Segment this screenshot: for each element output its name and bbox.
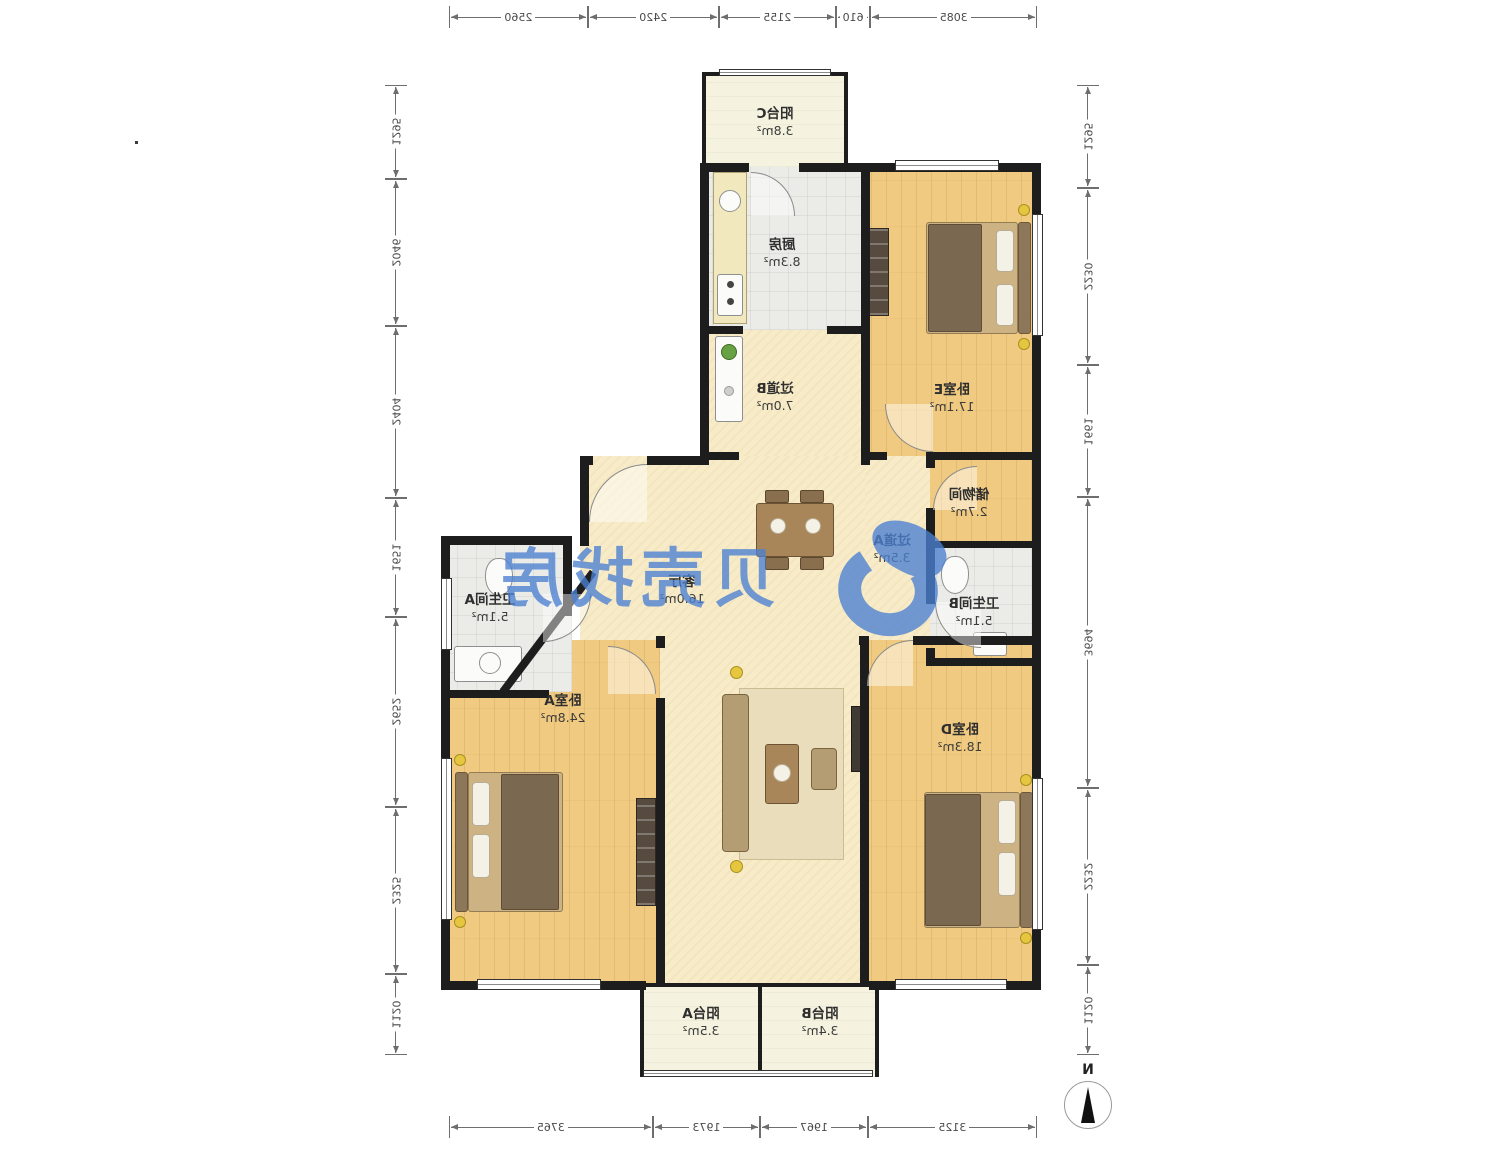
- wall: [758, 985, 762, 1075]
- dimension-segment: 2325: [385, 807, 407, 974]
- dimension-value: 2155: [760, 11, 794, 24]
- room-label-living: 客厅16.0m²: [659, 574, 704, 607]
- dimension-value: 2560: [501, 11, 535, 24]
- bed-blanket-icon: [928, 224, 982, 332]
- pillow-icon: [998, 852, 1016, 896]
- dimension-value: 3085: [937, 11, 971, 24]
- wall: [931, 452, 1041, 460]
- dimension-segment: 3694: [1077, 497, 1099, 788]
- armchair-icon: [811, 748, 837, 790]
- dimension-chain-left: 129522301661369422321120: [1077, 85, 1099, 1055]
- room-label-balcony-c: 阳台C3.8m²: [756, 106, 793, 139]
- room-label-kitchen: 厨房8.3m²: [763, 237, 800, 270]
- wall: [861, 452, 887, 460]
- dimension-segment: 610: [836, 6, 871, 28]
- wall: [702, 72, 706, 167]
- toilet-icon: [485, 558, 513, 596]
- side-table-icon: [730, 860, 743, 873]
- room-label-bedroom-d: 卧室D18.3m²: [937, 722, 982, 755]
- compass: N: [1058, 1062, 1118, 1129]
- dimension-segment: 2560: [449, 6, 588, 28]
- plate-icon: [805, 518, 821, 534]
- wardrobe-icon: [636, 798, 656, 906]
- wall: [926, 452, 935, 468]
- room-label-bath-a: 卫生间A5.1m²: [465, 592, 516, 625]
- side-table-icon: [730, 666, 743, 679]
- room-label-balcony-b: 阳台B3.4m²: [801, 1006, 838, 1039]
- dimension-value: 1120: [1082, 993, 1095, 1027]
- window: [477, 979, 601, 990]
- room-label-hallway-a: 过道A3.5m²: [873, 533, 910, 566]
- room-label-bedroom-a: 卧室A24.8m²: [540, 693, 585, 726]
- dimension-segment: 2230: [1077, 188, 1099, 365]
- sofa-icon: [722, 694, 749, 852]
- wall: [640, 983, 644, 1077]
- wall: [926, 658, 1032, 666]
- wall: [580, 456, 593, 465]
- dimension-chain-bottom: 3125196719733765: [449, 1116, 1037, 1138]
- nightstand-lamp-icon: [1018, 338, 1030, 350]
- wall: [860, 636, 869, 985]
- dimension-chain-right: 1295204624041651265223251120: [385, 85, 407, 1055]
- dimension-segment: 3765: [449, 1116, 653, 1138]
- bed-blanket-icon: [925, 794, 981, 926]
- dimension-value: 1651: [390, 541, 403, 575]
- wall: [844, 72, 848, 167]
- dimension-value: 3765: [534, 1121, 568, 1134]
- wall: [441, 690, 549, 698]
- floorplan-screenshot: 阳台C3.8m² 厨房8.3m² 卧室E17.1m² 过道B7.0m² 储物间2…: [0, 0, 1489, 1155]
- bed-headboard-icon: [1018, 222, 1031, 334]
- dimension-value: 3694: [1082, 626, 1095, 660]
- bed-headboard-icon: [455, 772, 468, 912]
- window: [895, 979, 1007, 990]
- window: [1032, 778, 1043, 930]
- dining-chair-icon: [800, 490, 824, 503]
- dimension-value: 1295: [1082, 120, 1095, 154]
- dimension-segment: 2232: [1077, 788, 1099, 965]
- compass-circle: [1064, 1081, 1112, 1129]
- dimension-segment: 1661: [1077, 365, 1099, 497]
- wall: [441, 536, 565, 545]
- wall: [861, 163, 870, 465]
- dimension-segment: 1967: [760, 1116, 867, 1138]
- dimension-value: 1661: [1082, 414, 1095, 448]
- dimension-segment: 3085: [870, 6, 1037, 28]
- dimension-segment: 1295: [1077, 85, 1099, 188]
- dimension-value: 610: [840, 11, 867, 24]
- dimension-segment: 2404: [385, 326, 407, 498]
- pillow-icon: [472, 834, 490, 878]
- wall: [656, 636, 665, 648]
- dining-table-icon: [756, 503, 834, 557]
- room-label-storage: 储物间2.7m²: [949, 487, 990, 520]
- dimension-segment: 1120: [1077, 965, 1099, 1055]
- dimension-chain-top: 3085610215524202560: [449, 6, 1037, 28]
- wardrobe-icon: [869, 228, 889, 316]
- dimension-value: 3125: [935, 1121, 969, 1134]
- dimension-value: 2404: [390, 395, 403, 429]
- dimension-segment: 2652: [385, 617, 407, 807]
- sink-icon: [719, 190, 741, 212]
- dimension-value: 2232: [1082, 860, 1095, 894]
- dimension-segment: 1651: [385, 498, 407, 617]
- room-label-hallway-b: 过道B7.0m²: [756, 381, 793, 414]
- dimension-value: 2420: [636, 11, 670, 24]
- balcony-railing: [643, 1070, 873, 1077]
- dimension-value: 1973: [689, 1121, 723, 1134]
- wall: [700, 163, 709, 465]
- wall: [827, 326, 865, 334]
- wall: [926, 508, 935, 604]
- dimension-value: 2230: [1082, 260, 1095, 294]
- dimension-segment: 2420: [588, 6, 719, 28]
- dining-chair-icon: [765, 557, 789, 570]
- compass-needle-icon: [1081, 1087, 1095, 1123]
- pillow-icon: [996, 284, 1014, 326]
- burner-icon: [727, 298, 734, 305]
- toilet-icon: [941, 556, 969, 594]
- pillow-icon: [996, 230, 1014, 272]
- dimension-value: 1120: [390, 997, 403, 1031]
- wall: [705, 326, 743, 334]
- nightstand-lamp-icon: [1018, 204, 1030, 216]
- dimension-value: 1295: [390, 115, 403, 149]
- wall: [580, 456, 589, 546]
- dimension-value: 2652: [390, 695, 403, 729]
- nightstand-lamp-icon: [454, 916, 466, 928]
- wall: [705, 452, 739, 460]
- window: [1032, 214, 1043, 336]
- window: [895, 160, 999, 171]
- wall: [875, 983, 879, 1077]
- dimension-value: 2046: [390, 235, 403, 269]
- wall: [932, 541, 1032, 548]
- dimension-segment: 1973: [653, 1116, 761, 1138]
- dimension-segment: 3125: [868, 1116, 1037, 1138]
- window: [441, 758, 452, 920]
- room-label-bath-b: 卫生间B5.1m²: [949, 596, 1000, 629]
- dimension-segment: 1295: [385, 85, 407, 179]
- burner-icon: [727, 281, 734, 288]
- room-label-balcony-a: 阳台A3.5m²: [682, 1006, 719, 1039]
- nightstand-lamp-icon: [1020, 932, 1032, 944]
- plate-icon: [770, 518, 786, 534]
- north-label: N: [1058, 1062, 1118, 1078]
- pillow-icon: [472, 782, 490, 826]
- decor-icon: [724, 386, 734, 396]
- room-label-bedroom-e: 卧室E17.1m²: [929, 382, 974, 415]
- dining-chair-icon: [765, 490, 789, 503]
- plant-icon: [721, 344, 737, 360]
- window: [719, 69, 831, 76]
- nightstand-lamp-icon: [1020, 774, 1032, 786]
- dimension-segment: 1120: [385, 974, 407, 1055]
- dining-chair-icon: [800, 557, 824, 570]
- wall: [656, 698, 665, 985]
- dimension-value: 2325: [390, 873, 403, 907]
- bed-blanket-icon: [501, 774, 559, 910]
- dimension-segment: 2046: [385, 179, 407, 326]
- pillow-icon: [998, 800, 1016, 844]
- tray-icon: [773, 764, 791, 782]
- nightstand-lamp-icon: [454, 754, 466, 766]
- dimension-segment: 2155: [719, 6, 836, 28]
- wall: [647, 456, 705, 465]
- mirrored-floorplan: 阳台C3.8m² 厨房8.3m² 卧室E17.1m² 过道B7.0m² 储物间2…: [0, 0, 1489, 1155]
- stray-dot: [135, 141, 138, 144]
- dimension-value: 1967: [797, 1121, 831, 1134]
- sink-icon: [479, 652, 501, 674]
- window: [441, 578, 452, 650]
